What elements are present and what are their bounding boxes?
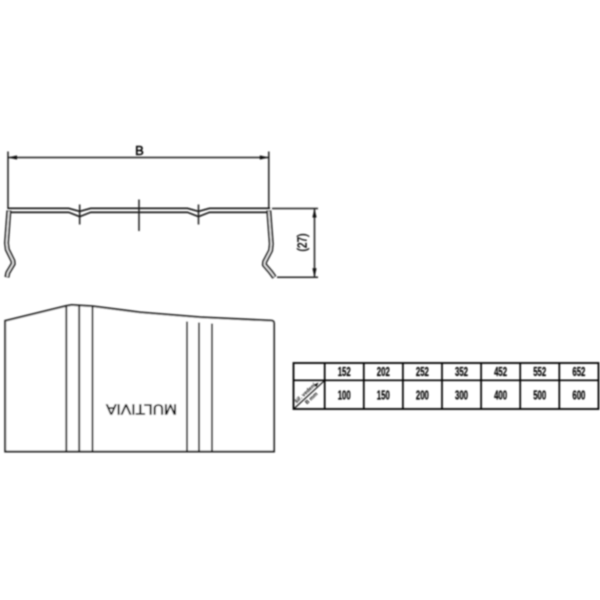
svg-text:600: 600 — [572, 387, 585, 402]
svg-text:B: B — [135, 143, 144, 158]
svg-text:400: 400 — [494, 387, 507, 402]
svg-text:100: 100 — [338, 387, 351, 402]
svg-text:452: 452 — [494, 364, 507, 379]
svg-text:MULTIVIA: MULTIVIA — [106, 400, 177, 417]
svg-text:152: 152 — [338, 364, 351, 379]
svg-text:300: 300 — [455, 387, 468, 402]
svg-text:252: 252 — [416, 364, 429, 379]
svg-text:552: 552 — [533, 364, 546, 379]
svg-text:200: 200 — [416, 387, 429, 402]
svg-text:500: 500 — [533, 387, 546, 402]
svg-text:352: 352 — [455, 364, 468, 379]
svg-text:150: 150 — [377, 387, 390, 402]
svg-text:652: 652 — [572, 364, 585, 379]
svg-text:202: 202 — [377, 364, 390, 379]
svg-text:(27): (27) — [296, 234, 310, 252]
